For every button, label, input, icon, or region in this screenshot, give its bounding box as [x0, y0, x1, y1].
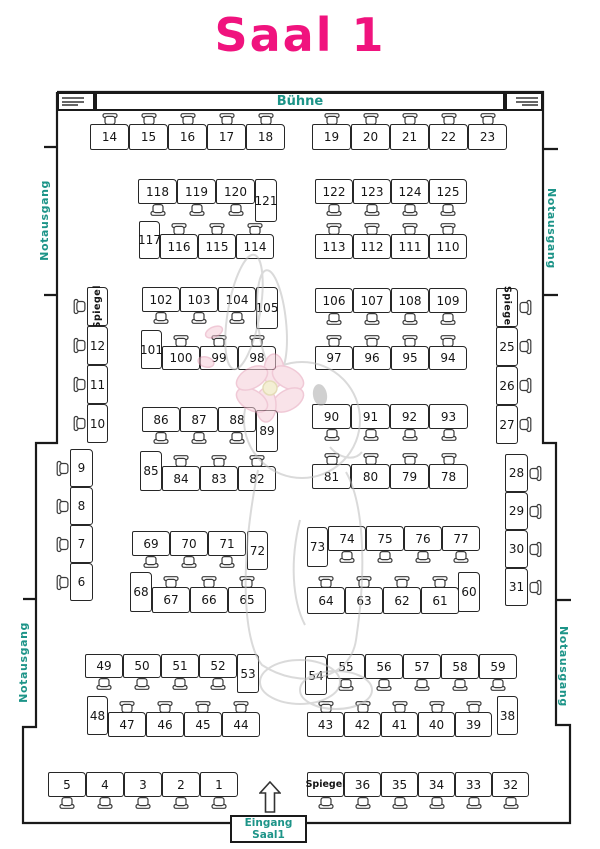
table-23: 23 — [468, 124, 507, 150]
table-number: 73 — [310, 540, 325, 554]
mirror-label-text: Spiegel — [92, 285, 103, 328]
table-number: 52 — [210, 659, 225, 673]
chair-icon — [171, 221, 187, 234]
table-number: 89 — [259, 424, 274, 438]
table-86: 86 — [142, 407, 180, 432]
table-1: 1 — [200, 772, 238, 797]
chair-icon — [318, 574, 334, 587]
table-104: 104 — [218, 287, 256, 312]
table-number: 12 — [90, 339, 105, 353]
table-3: 3 — [124, 772, 162, 797]
table-number: 41 — [392, 718, 407, 732]
chair-icon — [173, 333, 189, 346]
chair-icon — [72, 377, 85, 393]
table-number: 30 — [509, 542, 524, 556]
table-34: 34 — [418, 772, 455, 797]
chair-icon — [355, 798, 371, 811]
table-55: 55 — [327, 654, 365, 679]
table-87: 87 — [180, 407, 218, 432]
table-number: 98 — [249, 351, 264, 365]
chair-icon — [440, 205, 456, 218]
table-number: 106 — [323, 294, 346, 308]
chair-icon — [72, 338, 85, 354]
table-71: 71 — [208, 531, 246, 556]
table-90: 90 — [312, 404, 351, 429]
chair-icon — [392, 798, 408, 811]
chair-icon — [59, 798, 75, 811]
table-number: 18 — [258, 130, 273, 144]
table-number: 66 — [201, 593, 216, 607]
table-49: 49 — [85, 654, 123, 678]
chair-icon — [157, 699, 173, 712]
table-number: 64 — [318, 594, 333, 608]
table-118: 118 — [138, 179, 177, 204]
table-number: 102 — [150, 293, 173, 307]
chair-icon — [135, 798, 151, 811]
table-number: 17 — [219, 130, 234, 144]
table-number: 46 — [157, 718, 172, 732]
table-77: 77 — [442, 526, 480, 551]
table-29: 29 — [505, 492, 528, 530]
chair-icon — [249, 333, 265, 346]
table-number: 32 — [503, 778, 518, 792]
table-number: 2 — [177, 778, 185, 792]
table-116: 116 — [160, 234, 198, 259]
table-number: 67 — [163, 593, 178, 607]
chair-icon — [249, 453, 265, 466]
table-number: 123 — [361, 185, 384, 199]
table-70: 70 — [170, 531, 208, 556]
chair-icon — [363, 430, 379, 443]
table-95: 95 — [391, 346, 429, 370]
chair-icon — [339, 552, 355, 565]
table-63: 63 — [345, 587, 383, 614]
table-82: 82 — [238, 466, 276, 491]
stage-steps-left-icon — [57, 92, 95, 111]
table-number: 55 — [338, 660, 353, 674]
table-107: 107 — [353, 288, 391, 313]
table-50: 50 — [123, 654, 161, 678]
table-number: 85 — [143, 464, 158, 478]
mirror-label-text: Spiegel — [306, 779, 346, 790]
table-number: 119 — [185, 185, 208, 199]
chair-icon — [102, 111, 118, 124]
chair-icon — [141, 111, 157, 124]
table-26: 26 — [496, 366, 518, 405]
table-48: 48 — [87, 696, 108, 735]
mirror-label-text: Spiegel — [502, 286, 513, 329]
chair-icon — [134, 679, 150, 692]
table-number: 94 — [440, 351, 455, 365]
table-103: 103 — [180, 287, 218, 312]
chair-icon — [521, 378, 534, 394]
chair-icon — [394, 574, 410, 587]
chair-icon — [163, 574, 179, 587]
table-number: 44 — [233, 718, 248, 732]
table-number: 71 — [219, 537, 234, 551]
chair-icon — [324, 111, 340, 124]
entrance-label: Eingang Saal1 — [230, 815, 307, 843]
table-number: 15 — [141, 130, 156, 144]
table-68: 68 — [130, 572, 152, 612]
table-number: 75 — [377, 532, 392, 546]
table-81: 81 — [312, 464, 351, 489]
table-number: 4 — [101, 778, 109, 792]
table-31: 31 — [505, 568, 528, 606]
table-88: 88 — [218, 407, 256, 432]
table-112: 112 — [353, 234, 391, 259]
table-43: 43 — [307, 712, 344, 737]
mirror-label: Spiegel — [496, 288, 518, 327]
table-110: 110 — [429, 234, 467, 259]
chair-icon — [233, 699, 249, 712]
chair-icon — [119, 699, 135, 712]
table-64: 64 — [307, 587, 345, 614]
table-25: 25 — [496, 327, 518, 366]
table-number: 103 — [188, 293, 211, 307]
chair-icon — [201, 574, 217, 587]
table-51: 51 — [161, 654, 199, 678]
chair-icon — [480, 111, 496, 124]
table-number: 8 — [78, 499, 86, 513]
table-83: 83 — [200, 466, 238, 491]
chair-icon — [239, 574, 255, 587]
exit-label-bottom-right: Notausgang — [557, 626, 570, 707]
stage-steps-right-icon — [505, 92, 543, 111]
table-16: 16 — [168, 124, 207, 150]
chair-icon — [531, 579, 544, 595]
table-80: 80 — [351, 464, 390, 489]
table-number: 121 — [255, 194, 278, 208]
chair-icon — [55, 536, 68, 552]
table-number: 79 — [402, 470, 417, 484]
table-7: 7 — [70, 525, 93, 563]
chair-icon — [324, 430, 340, 443]
table-72: 72 — [247, 531, 268, 570]
table-number: 80 — [363, 470, 378, 484]
table-number: 77 — [453, 532, 468, 546]
chair-icon — [377, 552, 393, 565]
exit-label-top-left: Notausgang — [38, 180, 51, 261]
chair-icon — [440, 314, 456, 327]
chair-icon — [172, 679, 188, 692]
table-number: 39 — [466, 718, 481, 732]
chair-icon — [55, 460, 68, 476]
table-number: 47 — [119, 718, 134, 732]
table-76: 76 — [404, 526, 442, 551]
chair-icon — [229, 433, 245, 446]
chair-icon — [466, 699, 482, 712]
table-125: 125 — [429, 179, 467, 204]
table-number: 68 — [133, 585, 148, 599]
chair-icon — [228, 205, 244, 218]
table-66: 66 — [190, 587, 228, 613]
table-41: 41 — [381, 712, 418, 737]
table-52: 52 — [199, 654, 237, 678]
table-number: 51 — [172, 659, 187, 673]
chair-icon — [490, 680, 506, 693]
table-number: 113 — [323, 240, 346, 254]
table-number: 43 — [318, 718, 333, 732]
table-number: 93 — [441, 410, 456, 424]
exit-label-bottom-left: Notausgang — [17, 622, 30, 703]
table-number: 86 — [153, 413, 168, 427]
table-18: 18 — [246, 124, 285, 150]
table-number: 20 — [363, 130, 378, 144]
chair-icon — [429, 699, 445, 712]
table-33: 33 — [455, 772, 492, 797]
table-10: 10 — [87, 404, 108, 443]
table-number: 36 — [355, 778, 370, 792]
chair-icon — [356, 574, 372, 587]
table-30: 30 — [505, 530, 528, 568]
chair-icon — [364, 221, 380, 234]
chair-icon — [402, 314, 418, 327]
table-14: 14 — [90, 124, 129, 150]
table-27: 27 — [496, 405, 518, 444]
chair-icon — [521, 300, 534, 316]
chair-icon — [211, 798, 227, 811]
table-number: 114 — [244, 240, 267, 254]
mirror-label: Spiegel — [307, 772, 344, 797]
table-number: 118 — [146, 185, 169, 199]
chair-icon — [441, 451, 457, 464]
table-45: 45 — [184, 712, 222, 737]
chair-icon — [521, 417, 534, 433]
table-60: 60 — [458, 572, 480, 612]
table-105: 105 — [256, 287, 278, 329]
table-94: 94 — [429, 346, 467, 370]
table-98: 98 — [238, 346, 276, 370]
table-number: 1 — [215, 778, 223, 792]
table-number: 62 — [394, 594, 409, 608]
chair-icon — [326, 221, 342, 234]
table-8: 8 — [70, 487, 93, 525]
table-number: 6 — [78, 575, 86, 589]
exit-label-top-right: Notausgang — [545, 188, 558, 269]
table-number: 74 — [339, 532, 354, 546]
table-number: 45 — [195, 718, 210, 732]
table-number: 116 — [168, 240, 191, 254]
table-number: 27 — [499, 418, 514, 432]
table-number: 40 — [429, 718, 444, 732]
chair-icon — [364, 205, 380, 218]
table-111: 111 — [391, 234, 429, 259]
table-42: 42 — [344, 712, 381, 737]
table-number: 3 — [139, 778, 147, 792]
table-54: 54 — [305, 656, 327, 695]
chair-icon — [211, 333, 227, 346]
table-number: 69 — [143, 537, 158, 551]
table-123: 123 — [353, 179, 391, 204]
chair-icon — [440, 333, 456, 346]
table-15: 15 — [129, 124, 168, 150]
table-2: 2 — [162, 772, 200, 797]
table-number: 96 — [364, 351, 379, 365]
table-109: 109 — [429, 288, 467, 313]
table-number: 125 — [437, 185, 460, 199]
table-67: 67 — [152, 587, 190, 613]
chair-icon — [466, 798, 482, 811]
table-58: 58 — [441, 654, 479, 679]
mirror-label: Spiegel — [87, 287, 108, 326]
chair-icon — [229, 313, 245, 326]
table-124: 124 — [391, 179, 429, 204]
table-78: 78 — [429, 464, 468, 489]
chair-icon — [432, 574, 448, 587]
chair-icon — [521, 339, 534, 355]
chair-icon — [189, 205, 205, 218]
chair-icon — [531, 465, 544, 481]
table-56: 56 — [365, 654, 403, 679]
table-number: 92 — [402, 410, 417, 424]
chair-icon — [326, 314, 342, 327]
table-number: 31 — [509, 580, 524, 594]
chair-icon — [96, 679, 112, 692]
chair-icon — [414, 680, 430, 693]
chair-icon — [453, 552, 469, 565]
table-46: 46 — [146, 712, 184, 737]
table-89: 89 — [256, 410, 278, 452]
chair-icon — [143, 557, 159, 570]
chair-icon — [318, 699, 334, 712]
table-number: 112 — [361, 240, 384, 254]
chair-icon — [318, 798, 334, 811]
chair-icon — [363, 451, 379, 464]
table-108: 108 — [391, 288, 429, 313]
chair-icon — [402, 451, 418, 464]
table-number: 57 — [414, 660, 429, 674]
chair-icon — [376, 680, 392, 693]
table-28: 28 — [505, 454, 528, 492]
table-number: 91 — [363, 410, 378, 424]
table-62: 62 — [383, 587, 421, 614]
table-101: 101 — [141, 330, 162, 369]
table-120: 120 — [216, 179, 255, 204]
table-number: 87 — [191, 413, 206, 427]
table-39: 39 — [455, 712, 492, 737]
chair-icon — [173, 798, 189, 811]
table-19: 19 — [312, 124, 351, 150]
table-number: 117 — [138, 233, 161, 247]
table-number: 65 — [239, 593, 254, 607]
table-number: 56 — [376, 660, 391, 674]
table-61: 61 — [421, 587, 459, 614]
table-20: 20 — [351, 124, 390, 150]
table-number: 122 — [323, 185, 346, 199]
table-65: 65 — [228, 587, 266, 613]
chair-icon — [72, 299, 85, 315]
chair-icon — [55, 574, 68, 590]
table-40: 40 — [418, 712, 455, 737]
table-99: 99 — [200, 346, 238, 370]
table-32: 32 — [492, 772, 529, 797]
table-114: 114 — [236, 234, 274, 259]
table-number: 59 — [490, 660, 505, 674]
table-74: 74 — [328, 526, 366, 551]
table-number: 28 — [509, 466, 524, 480]
table-number: 49 — [96, 659, 111, 673]
table-number: 5 — [63, 778, 71, 792]
table-number: 38 — [500, 709, 515, 723]
table-number: 84 — [173, 472, 188, 486]
chair-icon — [191, 313, 207, 326]
entrance-arrow-icon — [259, 781, 281, 813]
chair-icon — [402, 205, 418, 218]
chair-icon — [363, 111, 379, 124]
table-38: 38 — [497, 696, 518, 735]
table-59: 59 — [479, 654, 517, 679]
chair-icon — [441, 111, 457, 124]
chair-icon — [355, 699, 371, 712]
table-11: 11 — [87, 365, 108, 404]
table-number: 54 — [308, 669, 323, 683]
table-number: 9 — [78, 461, 86, 475]
table-number: 109 — [437, 294, 460, 308]
table-113: 113 — [315, 234, 353, 259]
chair-icon — [402, 111, 418, 124]
table-number: 100 — [170, 351, 193, 365]
table-number: 29 — [509, 504, 524, 518]
chair-icon — [258, 111, 274, 124]
chair-icon — [181, 557, 197, 570]
table-number: 60 — [461, 585, 476, 599]
table-number: 23 — [480, 130, 495, 144]
chair-icon — [402, 333, 418, 346]
table-number: 90 — [324, 410, 339, 424]
chair-icon — [191, 433, 207, 446]
table-number: 61 — [432, 594, 447, 608]
table-6: 6 — [70, 563, 93, 601]
chair-icon — [326, 333, 342, 346]
chair-icon — [210, 679, 226, 692]
chair-icon — [452, 680, 468, 693]
table-91: 91 — [351, 404, 390, 429]
chair-icon — [338, 680, 354, 693]
table-84: 84 — [162, 466, 200, 491]
chair-icon — [150, 205, 166, 218]
table-22: 22 — [429, 124, 468, 150]
table-100: 100 — [162, 346, 200, 370]
chair-icon — [531, 503, 544, 519]
table-75: 75 — [366, 526, 404, 551]
entrance-label-line1: Eingang — [245, 817, 293, 829]
table-96: 96 — [353, 346, 391, 370]
table-122: 122 — [315, 179, 353, 204]
chair-icon — [415, 552, 431, 565]
chair-icon — [211, 453, 227, 466]
table-number: 81 — [324, 470, 339, 484]
chair-icon — [97, 798, 113, 811]
chair-icon — [153, 313, 169, 326]
table-102: 102 — [142, 287, 180, 312]
table-35: 35 — [381, 772, 418, 797]
table-4: 4 — [86, 772, 124, 797]
table-number: 82 — [249, 472, 264, 486]
table-number: 78 — [441, 470, 456, 484]
table-number: 111 — [399, 240, 422, 254]
table-number: 53 — [240, 667, 255, 681]
chair-icon — [441, 430, 457, 443]
table-number: 35 — [392, 778, 407, 792]
table-121: 121 — [255, 179, 277, 222]
table-119: 119 — [177, 179, 216, 204]
chair-icon — [324, 451, 340, 464]
table-number: 108 — [399, 294, 422, 308]
table-number: 26 — [499, 379, 514, 393]
table-number: 22 — [441, 130, 456, 144]
table-17: 17 — [207, 124, 246, 150]
